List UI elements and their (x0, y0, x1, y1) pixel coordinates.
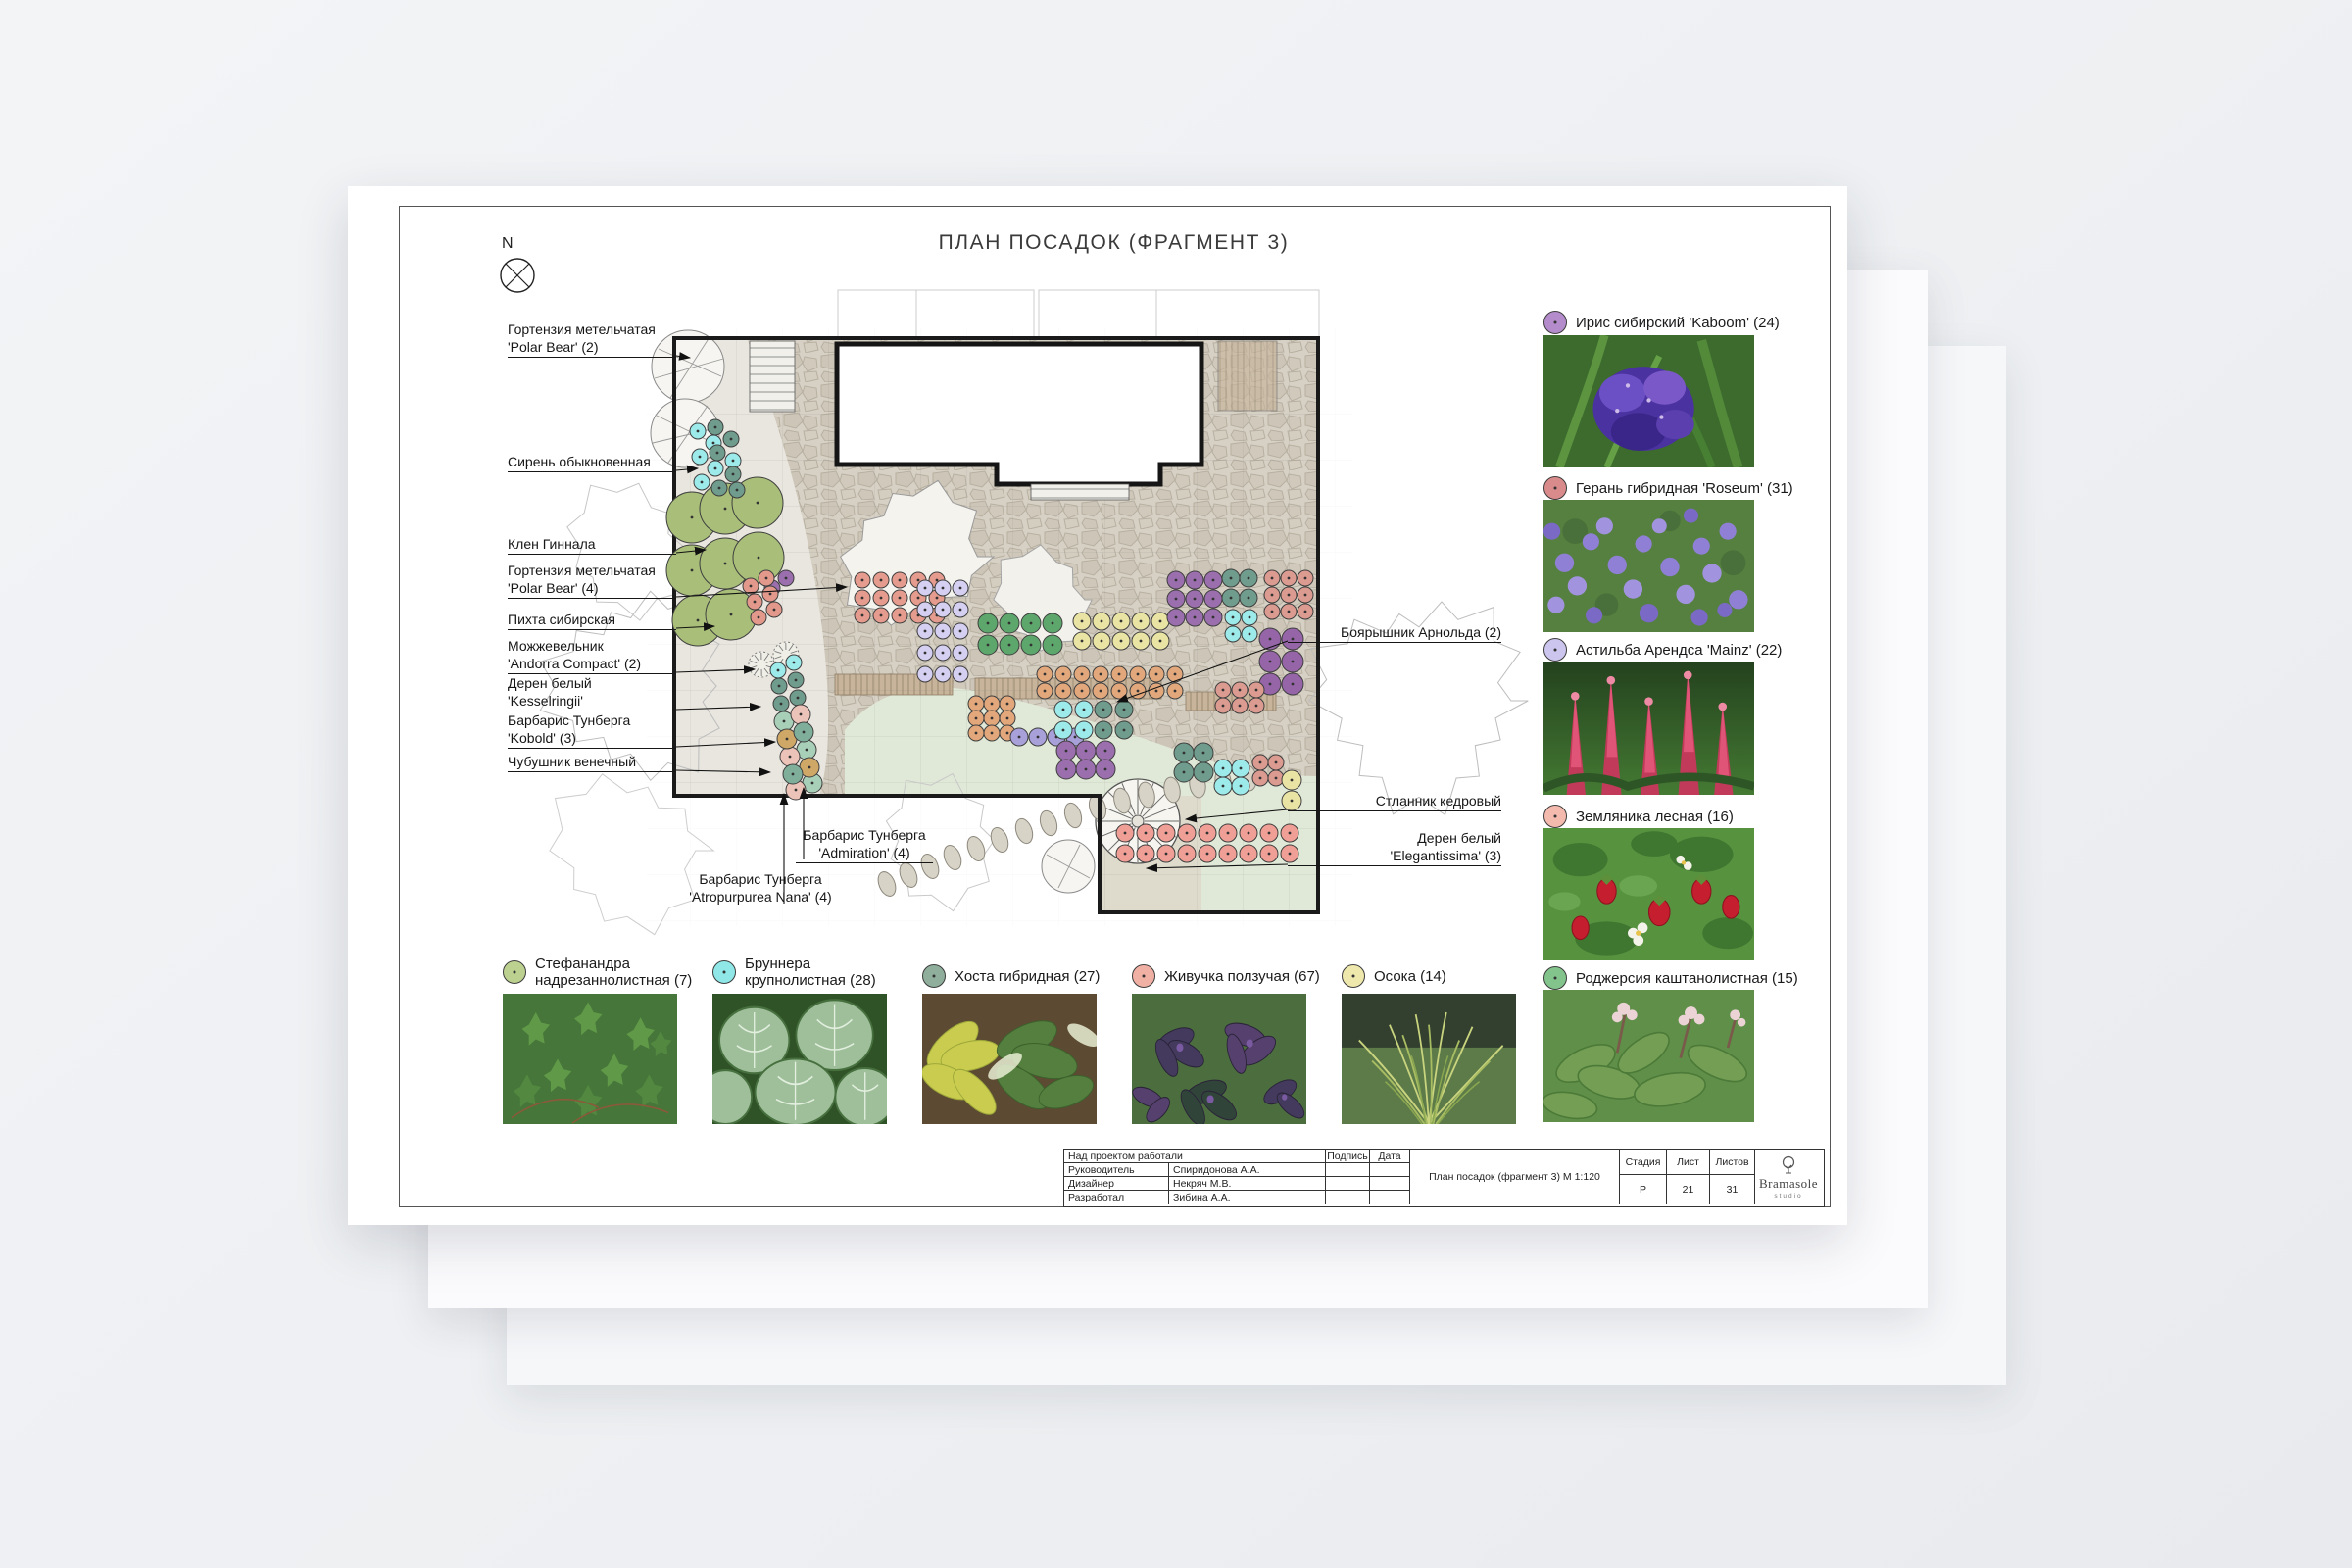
photo-sedge (1342, 994, 1516, 1124)
callout-hydrangea-polar-bear-4: Гортензия метельчатая'Polar Bear' (4) (508, 562, 676, 599)
callout-hawthorn-arnold: Боярышник Арнольда (2) (1288, 623, 1501, 643)
plant-symbol-icon (1543, 805, 1567, 828)
legend-item-strawberry: Земляника лесная (16) (1543, 805, 1734, 828)
legend-item-iris: Ирис сибирский 'Kaboom' (24) (1543, 311, 1780, 334)
legend-item-hosta: Хоста гибридная (27) (922, 964, 1100, 988)
plant-symbol-icon (1543, 311, 1567, 334)
plants-salmon-top (855, 572, 945, 623)
photo-brunnera (712, 994, 887, 1124)
photo-stephanandra (503, 994, 677, 1124)
titleblock-header: Над проектом работали (1064, 1150, 1326, 1163)
photo-rodgersia (1543, 990, 1754, 1122)
porch-steps (1031, 484, 1129, 500)
photo-strawberry (1543, 828, 1754, 960)
callout-dogwood-kesselringii: Дерен белый'Kesselringii' (508, 674, 676, 711)
callout-amur-maple: Клен Гиннала (508, 535, 676, 555)
legend-item-rodgersia: Роджерсия каштанолистная (15) (1543, 966, 1798, 990)
photo-hosta (922, 994, 1097, 1124)
plant-symbol-icon (1132, 964, 1155, 988)
plants-purple-mid (1056, 741, 1115, 779)
titleblock-sheets-value: 31 (1710, 1175, 1755, 1204)
plan-drawing (0, 0, 2352, 1568)
callout-barberry-kobold: Барбарис Тунберга'Kobold' (3) (508, 711, 676, 749)
callout-barberry-admiration: Барбарис Тунберга'Admiration' (4) (796, 826, 933, 863)
plants-salmon-rightrow (1215, 682, 1264, 713)
titleblock-sheet-value: 21 (1667, 1175, 1710, 1204)
photo-ajuga (1132, 994, 1306, 1124)
legend-item-geranium: Герань гибридная 'Roseum' (31) (1543, 476, 1793, 500)
stairs-left (750, 341, 795, 412)
plants-lavender-left (917, 580, 968, 682)
legend-item-sedge: Осока (14) (1342, 964, 1446, 988)
legend-item-stephanandra: Стефанандранадрезаннолистная (7) (503, 955, 692, 989)
callout-mock-orange: Чубушник венечный (508, 753, 676, 772)
legend-item-astilbe: Астильба Арендса 'Mainz' (22) (1543, 638, 1782, 661)
titleblock-role: Разработал (1064, 1191, 1169, 1204)
callout-cedar-pine: Стланник кедровый (1288, 792, 1501, 811)
titleblock-name: Спиридонова А.А. (1169, 1163, 1326, 1177)
titleblock-stage-value: Р (1620, 1175, 1667, 1204)
plant-symbol-icon (1543, 966, 1567, 990)
plant-symbol-icon (1543, 638, 1567, 661)
titleblock-sheets-label: Листов (1710, 1150, 1755, 1175)
legend-item-brunnera: Бруннеракрупнолистная (28) (712, 955, 876, 989)
photo-astilbe (1543, 662, 1754, 795)
photo-geranium (1543, 500, 1754, 632)
callout-barberry-atropurpurea: Барбарис Тунберга'Atropurpurea Nana' (4) (632, 870, 889, 907)
tree-logo-icon (1779, 1155, 1798, 1175)
callout-lilac: Сирень обыкновенная (508, 453, 676, 472)
plants-orange-cluster (968, 696, 1015, 741)
titleblock-date-label: Дата (1370, 1150, 1410, 1163)
titleblock-stage-label: Стадия (1620, 1150, 1667, 1175)
titleblock-role: Руководитель (1064, 1163, 1169, 1177)
studio-logo: Bramasole studio (1755, 1150, 1822, 1204)
screenshot-stage: ПЛАН ПОСАДОК (ФРАГМЕНТ 3) N (0, 0, 2352, 1568)
titleblock-sheet-label: Лист (1667, 1150, 1710, 1175)
titleblock-role: Дизайнер (1064, 1177, 1169, 1191)
plants-salmon-topright (1264, 570, 1313, 619)
plant-symbol-icon (922, 964, 946, 988)
plant-symbol-icon (503, 960, 526, 984)
plant-symbol-icon (1342, 964, 1365, 988)
plants-purple-topright (1167, 571, 1222, 626)
deck-right (1218, 341, 1277, 411)
callout-siberian-fir: Пихта сибирская (508, 611, 676, 630)
callout-hydrangea-polar-bear-2: Гортензия метельчатая'Polar Bear' (2) (508, 320, 676, 358)
plant-symbol-icon (1543, 476, 1567, 500)
legend-item-ajuga: Живучка ползучая (67) (1132, 964, 1320, 988)
plant-symbol-icon (712, 960, 736, 984)
callout-juniper-andorra: Можжевельник'Andorra Compact' (2) (508, 637, 676, 674)
titleblock-name: Зибина А.А. (1169, 1191, 1326, 1204)
title-block: Над проектом работали Подпись Дата Руков… (1063, 1149, 1825, 1207)
titleblock-doc-title: План посадок (фрагмент 3) М 1:120 (1410, 1150, 1620, 1204)
photo-iris (1543, 335, 1754, 467)
titleblock-name: Некряч М.В. (1169, 1177, 1326, 1191)
callout-dogwood-elegantissima: Дерен белый'Elegantissima' (3) (1288, 829, 1501, 866)
titleblock-sign-label: Подпись (1326, 1150, 1370, 1163)
